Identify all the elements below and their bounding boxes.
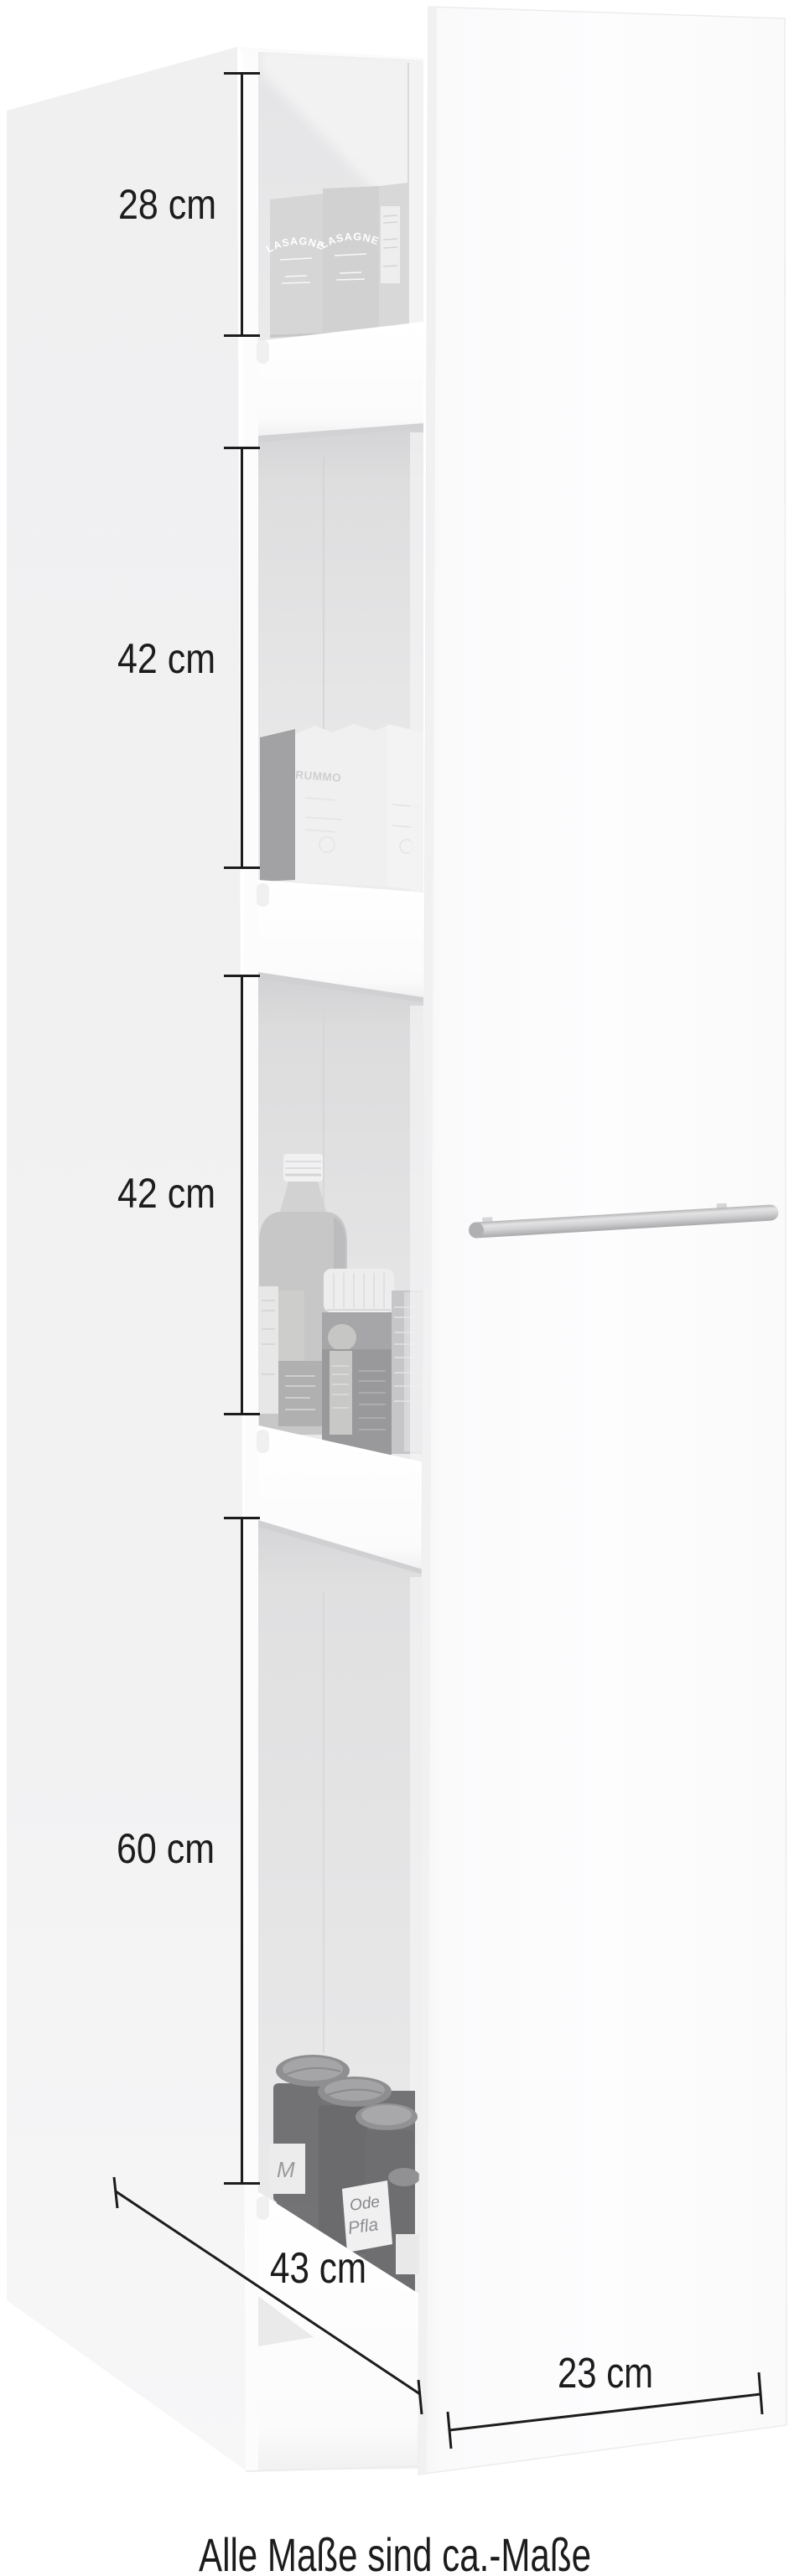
svg-text:23 cm: 23 cm [558,2349,653,2397]
svg-text:28 cm: 28 cm [118,181,216,228]
svg-text:M: M [277,2157,295,2182]
svg-text:Alle Maße sind ca.-Maße: Alle Maße sind ca.-Maße [199,2528,591,2576]
svg-text:42 cm: 42 cm [117,635,215,682]
svg-text:42 cm: 42 cm [117,1170,215,1217]
svg-text:43 cm: 43 cm [270,2244,366,2293]
svg-text:60 cm: 60 cm [117,1825,215,1872]
